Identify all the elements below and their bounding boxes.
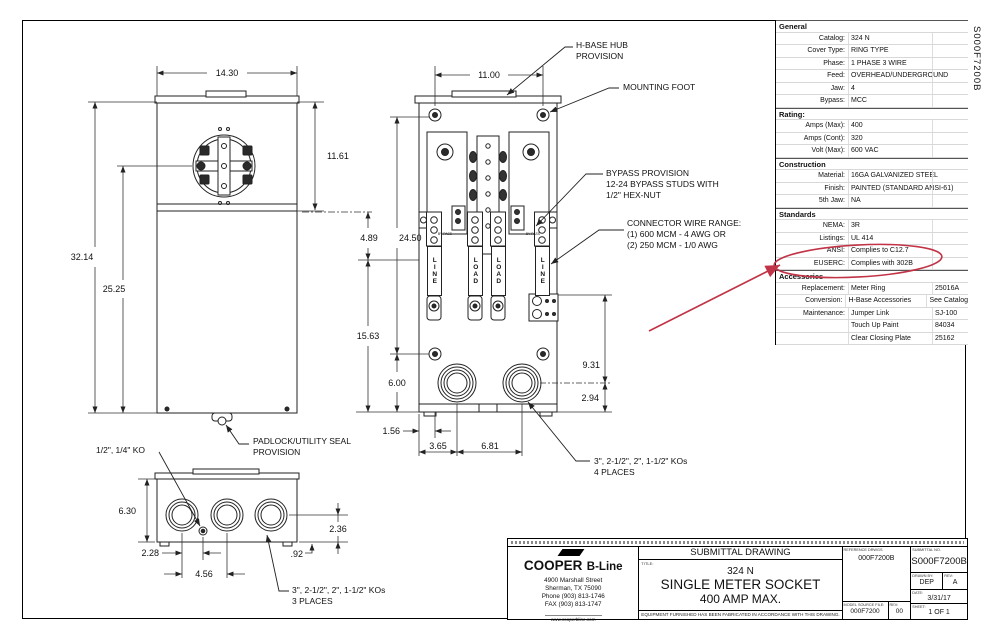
dim-365: 3.65: [429, 441, 447, 451]
front-view: [155, 91, 299, 425]
h-base-hub-tab: [452, 91, 516, 97]
cooper-bline-logo: COOPER B-Line: [508, 557, 638, 575]
title-block: COOPER B-Line 4900 Marshall Street Sherm…: [507, 538, 968, 620]
callout-small-ko: 1/2", 1/4" KO: [96, 445, 145, 455]
equipment-note: EQUIPMENT FURNISHED HAS BEEN FABRICATED …: [639, 610, 841, 619]
svg-text:PROVISION: PROVISION: [253, 447, 300, 457]
callout-ko-4-places: 3", 2-1/2", 2", 1-1/2" KOs: [594, 456, 687, 466]
submittal-drawing-sheet: { "sheet": { "code_vertical": "S000F7200…: [0, 0, 1000, 644]
spec-row-listings: Listings:UL 414: [776, 233, 968, 246]
spec-row-ansi: ANSI:Complies to C12.7: [776, 245, 968, 258]
dim-front-upper: 11.61: [327, 151, 349, 161]
sheet-code-vertical: S000F7200B: [971, 26, 982, 91]
bypass-stud-label: BY-PASS: [526, 232, 541, 236]
dim-front-meter: 25.25: [103, 284, 126, 294]
dim-931: 9.31: [582, 360, 600, 370]
svg-text:PROVISION: PROVISION: [576, 51, 623, 61]
spec-row-volt-max: Volt (Max):600 VAC: [776, 145, 968, 158]
svg-text:1/2" HEX-NUT: 1/2" HEX-NUT: [606, 190, 661, 200]
company-cell: COOPER B-Line 4900 Marshall Street Sherm…: [508, 547, 639, 619]
svg-text:12-24 BYPASS STUDS WITH: 12-24 BYPASS STUDS WITH: [606, 179, 719, 189]
spec-row-material: Material:16GA GALVANIZED STEEL: [776, 170, 968, 183]
spec-row-finish: Finish:PAINTED (STANDARD ANSI-61): [776, 183, 968, 196]
drawn-rev-row: DRAWN BY: DEP REV: A: [911, 573, 967, 590]
dim-front-height: 32.14: [71, 252, 94, 262]
drawn-by-cell: DRAWN BY: DEP: [911, 573, 943, 589]
bus-label-load-2: LOAD: [491, 246, 506, 296]
submittal-no-cell: SUBMITTAL NO. S000F7200B: [911, 547, 967, 573]
bus-label-line-2: LINE: [535, 246, 550, 296]
spec-section-construction: Construction: [776, 158, 968, 171]
drawing-title-line1: 324 N: [639, 566, 841, 577]
drawing-type: SUBMITTAL DRAWING: [639, 547, 841, 560]
dim-inner-width: 11.00: [478, 70, 500, 80]
spec-row-touch-up-paint: Touch Up Paint84034: [776, 320, 968, 333]
callout-bypass: BYPASS PROVISION: [606, 168, 689, 178]
spec-row-amps-cont: Amps (Cont):320: [776, 133, 968, 146]
spec-row-nema: NEMA:3R: [776, 220, 968, 233]
drawing-title-line3: 400 AMP MAX.: [639, 592, 841, 606]
svg-text:4 PLACES: 4 PLACES: [594, 467, 635, 477]
reference-drwgs-cell: REFERENCE DRWGS 000F7200B: [843, 547, 911, 602]
spec-row-cover-type: Cover Type:RING TYPE: [776, 45, 968, 58]
disclaimer-microtext: [508, 539, 967, 547]
sheet-cell: SHEET: 1 OF 1: [911, 604, 967, 619]
cooper-logo-wedge: [558, 549, 585, 556]
dim-front-width: 14.30: [216, 68, 239, 78]
bus-label-load-1: LOAD: [468, 246, 483, 296]
spec-row-conversion: Conversion:H-Base AccessoriesSee Catalog: [776, 295, 968, 308]
dim-489: 4.89: [360, 233, 378, 243]
callout-padlock: PADLOCK/UTILITY SEAL: [253, 436, 351, 446]
submittal-column: SUBMITTAL NO. S000F7200B DRAWN BY: DEP R…: [911, 547, 967, 619]
dim-2450: 24.50: [399, 233, 422, 243]
spec-row-jaw: Jaw:4: [776, 83, 968, 96]
model-rev-cell: REV: 00: [889, 602, 911, 619]
spec-row-replacement: Replacement:Meter Ring25016A: [776, 283, 968, 296]
spec-row-feed: Feed:OVERHEAD/UNDERGROUND: [776, 70, 968, 83]
callout-h-base-hub: H-BASE HUB: [576, 40, 628, 50]
dim-1563: 15.63: [357, 331, 380, 341]
dim-92: .92: [290, 549, 303, 559]
spec-row-catalog: Catalog:324 N: [776, 33, 968, 46]
svg-text:(1) 600 MCM - 4 AWG OR: (1) 600 MCM - 4 AWG OR: [627, 229, 726, 239]
date-cell: DATE: 3/31/17: [911, 590, 967, 604]
model-source-row: MODEL SOURCE FILE: 000F7200 REV: 00: [843, 602, 911, 619]
spec-row-bypass: Bypass:MCC: [776, 95, 968, 108]
spec-row-phase: Phase:1 PHASE 3 WIRE: [776, 58, 968, 71]
callout-connector-wire-range: CONNECTOR WIRE RANGE:: [627, 218, 741, 228]
company-address: 4900 Marshall Street Sherman, TX 75090 P…: [508, 577, 638, 608]
dim-294: 2.94: [581, 393, 599, 403]
spec-section-accessories: Accessories: [776, 270, 968, 283]
dim-630: 6.30: [118, 506, 136, 516]
dim-456: 4.56: [195, 569, 213, 579]
reference-column: REFERENCE DRWGS 000F7200B MODEL SOURCE F…: [843, 547, 912, 619]
rev-cell: REV: A: [943, 573, 967, 589]
spec-row-maintenance: Maintenance:Jumper LinkSJ-100: [776, 308, 968, 321]
svg-text:(2) 250 MCM - 1/0 AWG: (2) 250 MCM - 1/0 AWG: [627, 240, 718, 250]
title-label: TITLE:: [641, 561, 653, 566]
spec-row-amps-max: Amps (Max):400: [776, 120, 968, 133]
spec-row-clear-closing-plate: Clear Closing Plate25162: [776, 333, 968, 346]
bypass-stud-label: BY-PASS: [438, 232, 453, 236]
spec-section-general: General: [776, 20, 968, 33]
company-website: www.cooperbline.com: [545, 615, 602, 622]
spec-section-standards: Standards: [776, 208, 968, 221]
model-source-cell: MODEL SOURCE FILE: 000F7200: [843, 602, 889, 619]
drawing-title-line2: SINGLE METER SOCKET: [639, 577, 841, 592]
title-cell: SUBMITTAL DRAWING TITLE: 324 N SINGLE ME…: [639, 547, 842, 619]
spec-row-5th-jaw: 5th Jaw:NA: [776, 195, 968, 208]
dim-236: 2.36: [329, 524, 347, 534]
svg-text:3 PLACES: 3 PLACES: [292, 596, 333, 606]
dim-156: 1.56: [382, 426, 400, 436]
bus-label-line-1: LINE: [427, 246, 442, 296]
spec-section-rating: Rating:: [776, 108, 968, 121]
callout-ko-3-places: 3", 2-1/2", 2", 1-1/2" KOs: [292, 585, 385, 595]
spec-table: General Catalog:324 N Cover Type:RING TY…: [775, 20, 968, 345]
dim-600: 6.00: [388, 378, 406, 388]
dim-681: 6.81: [481, 441, 499, 451]
dim-228: 2.28: [141, 548, 159, 558]
callout-mounting-foot: MOUNTING FOOT: [623, 82, 695, 92]
section-label: General: [776, 21, 807, 32]
spec-row-euserc: EUSERC:Complies with 302B: [776, 258, 968, 271]
